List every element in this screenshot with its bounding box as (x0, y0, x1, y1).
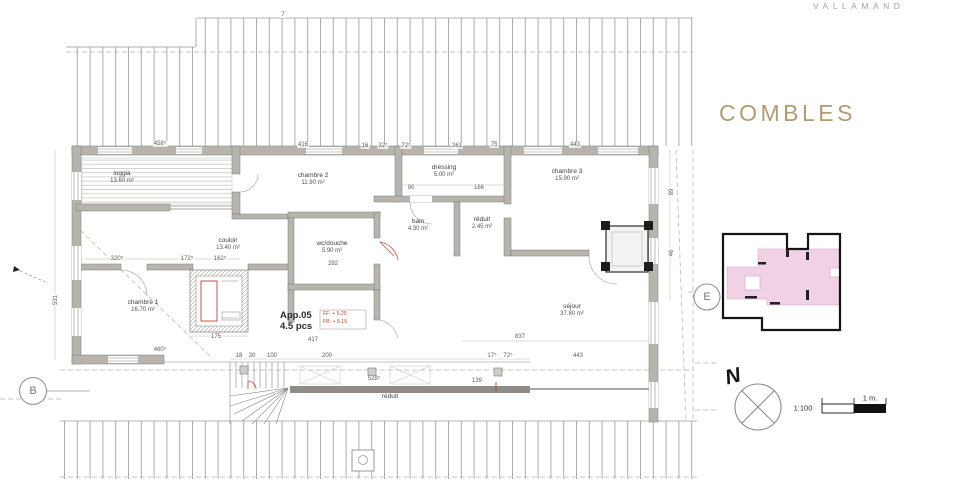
page-title: COMBLES (719, 100, 856, 127)
dimension-label: 18 (235, 353, 244, 359)
dimension-label: 528⁵ (367, 376, 382, 382)
slope-arrow-icon (13, 266, 48, 283)
roof-window (352, 450, 374, 471)
dimension-label: 32⁵ (377, 143, 388, 149)
dimension-label: 458⁵ (153, 141, 168, 147)
dimension-label: 460⁵ (153, 347, 168, 353)
room-label: dressing5.00 m² (432, 164, 457, 180)
dimension-label: 30 (248, 353, 257, 359)
dimension-label: 172⁵ (180, 256, 195, 262)
room-label: chambre 211.90 m² (298, 172, 329, 188)
dimension-label: 175 (210, 334, 222, 340)
north-compass-icon (735, 384, 781, 430)
room-label: couloir13.40 m² (216, 237, 240, 253)
room-label: bain4.30 m² (408, 218, 428, 234)
apartment-rooms-count: 4.5 pcs (280, 321, 312, 332)
key-plan (723, 234, 840, 330)
dimension-label: 89 (669, 188, 675, 197)
dimension-label: 166 (473, 185, 485, 191)
room-label: wc/douche5.90 m² (316, 240, 347, 256)
dimension-label: 7 (280, 12, 285, 18)
dimension-label: 443 (572, 353, 584, 359)
project-name: VALLAMAND (813, 1, 904, 11)
dimension-label: 17⁵ (486, 353, 497, 359)
section-marker-b: B (29, 385, 36, 397)
section-marker-e: E (703, 291, 710, 303)
room-label: loggia13.60 m² (110, 170, 134, 186)
dimension-label: 261 (451, 143, 463, 149)
loggia-decking (82, 158, 232, 209)
room-label: chambre 116.70 m² (128, 299, 159, 315)
dimension-label: 837 (514, 334, 526, 340)
dimension-label: 200 (321, 353, 333, 359)
dimension-label: 16 (361, 143, 370, 149)
room-label: séjour37.80 m² (560, 303, 584, 319)
floor-plan-sheet: VALLAMAND COMBLES App.05 4.5 pcs FF: + 5… (0, 0, 960, 500)
dimension-label: 531 (53, 294, 59, 306)
dimension-label: 282 (327, 261, 339, 267)
dimension-label: 417 (307, 337, 319, 343)
level-ff: FF: + 5.25 (323, 311, 347, 319)
level-fb: FB: + 5.15 (323, 319, 347, 327)
roof-hatching (60, 18, 697, 479)
chimney (601, 221, 653, 272)
dimension-label: 46 (669, 249, 675, 258)
dimension-label: 75 (490, 142, 499, 148)
dimension-label: 443 (569, 142, 581, 148)
scale-unit-label: 1 m. (863, 394, 878, 403)
dimension-label: 320⁵ (110, 256, 125, 262)
room-label: chambre 315.90 m² (552, 168, 583, 184)
apartment-id: App.05 (280, 310, 312, 321)
dimension-label: 139 (471, 378, 483, 384)
dimension-label: 100 (266, 353, 278, 359)
dimension-label: 72⁵ (502, 353, 513, 359)
room-label: réduit (382, 393, 398, 401)
dimension-label: 162⁵ (213, 256, 228, 262)
floor-plan-drawing (0, 0, 960, 500)
dimension-label: 72⁵ (400, 143, 411, 149)
dimension-label: 416 (297, 142, 309, 148)
room-label: réduit2.45 m² (472, 216, 492, 232)
dimension-label: 90 (407, 185, 416, 191)
scale-ratio-label: 1:100 (794, 404, 813, 413)
elevator-shaft (190, 270, 248, 332)
apartment-label: App.05 4.5 pcs (280, 310, 312, 333)
